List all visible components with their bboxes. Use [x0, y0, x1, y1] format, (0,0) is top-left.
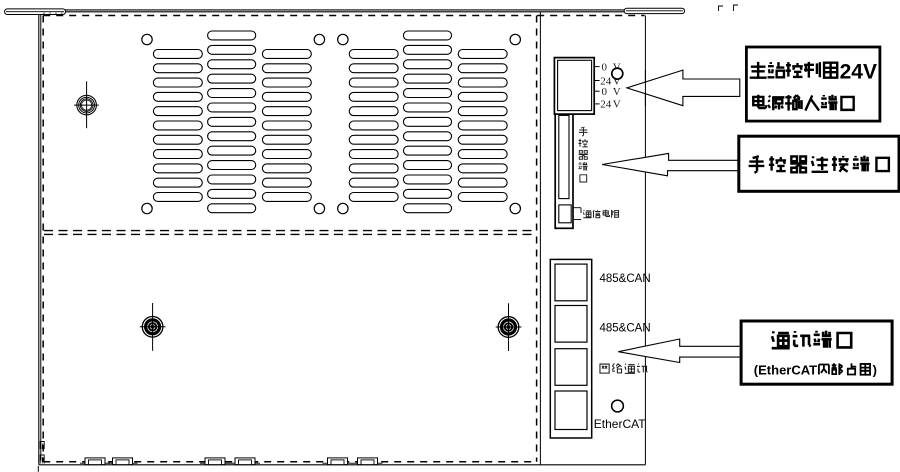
svg-text:24V: 24V: [840, 61, 877, 84]
svg-text:485&CAN: 485&CAN: [600, 273, 651, 285]
svg-text:V: V: [613, 86, 621, 98]
svg-text:24: 24: [600, 99, 612, 111]
svg-text:485&CAN: 485&CAN: [600, 323, 651, 335]
svg-text:V: V: [613, 99, 621, 111]
svg-text:EtherCAT: EtherCAT: [594, 417, 646, 431]
svg-text:): ): [873, 363, 877, 378]
svg-text:0: 0: [602, 86, 608, 98]
svg-text:0: 0: [602, 61, 608, 73]
svg-text:(EtherCAT: (EtherCAT: [754, 363, 817, 378]
